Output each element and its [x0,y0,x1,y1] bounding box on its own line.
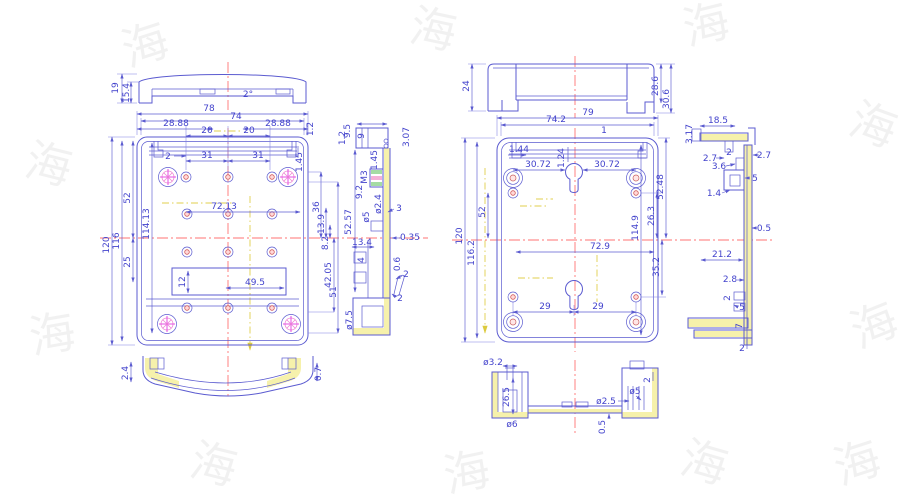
dim-label: 31 [252,151,263,161]
screw-boss [282,315,301,334]
dim-label: 13.9 [317,214,327,234]
dim-label: M3 [360,170,370,184]
dim-label: 31 [201,151,212,161]
dim-label: 30.6 [662,89,672,109]
dim-label: 20 [201,126,213,136]
dim-label: 74.2 [546,115,566,125]
watermark-glyph: 海 [675,430,734,495]
dim-label: 5 [739,303,745,313]
dim-label: 4 [357,257,367,263]
dim-label: 1.45 [370,150,380,170]
dim-label: 114.13 [142,208,152,240]
dim-label: 8.2 [321,236,331,250]
dim-label: 9.2 [355,185,365,199]
watermark-glyph: 海 [827,430,887,496]
dim-label: 49.5 [245,278,265,288]
dim-label: 26.3 [647,206,657,226]
dim-label: 1.44 [509,145,529,155]
left-main-view [137,137,308,345]
dim-label: ø3.2 [483,358,503,368]
dim-label: 0.6 [393,257,403,272]
watermark-glyph: 海 [25,304,80,365]
dim-label: 29 [539,302,551,312]
dim-label: 15.4 [122,83,132,103]
right-main-dimensions: 79 74.2 1.44 1.24 1 30.72 30.72 120 116.… [455,108,670,342]
dim-label: 7 [735,323,745,329]
dim-label: 79 [582,108,594,118]
watermark-glyph: 海 [843,92,900,158]
dim-label: 2 [165,152,171,162]
screw-boss [159,168,178,187]
watermark-glyph: 海 [439,441,495,500]
bottom-section-detail-view: ø3.2 26.5 ø6 ø2.5 ø5 0.5 2 [483,358,658,434]
dim-label: 42.05 [324,262,334,288]
dim-label: 1.2 [306,122,316,136]
dim-label: 52 [478,206,488,217]
dim-label: 20 [243,126,255,136]
dim-label: 25 [123,256,133,267]
dim-label: 18.5 [708,116,728,126]
right-lid-profile-view: 24 28.6 30.6 [462,64,675,113]
dim-label: 2 [397,294,403,304]
dim-label: 2 [726,148,732,158]
dim-label: 116.2 [467,240,477,266]
dim-label: 2.4 [121,366,131,381]
dim-label: 28.88 [265,119,291,129]
dim-label: 24 [462,80,472,92]
dim-label: 52 [123,192,133,203]
dim-label: 52.57 [344,209,354,235]
dim-label: 52.48 [656,174,666,200]
dim-label: ø2.4 [374,194,384,214]
dim-label: 36 [312,201,322,213]
dim-label: 19 [111,82,121,94]
dim-label: 0.7 [314,367,324,381]
dim-label: 2 [403,270,409,280]
dim-label: 120 [455,227,465,244]
screw-boss [158,315,177,334]
dim-label: 30.72 [594,160,620,170]
dim-label: 116 [112,232,122,249]
left-main-dimensions: 78 74 28.88 28.88 20 20 2 31 31 1.2 1.45… [102,104,316,345]
dim-label: 3.6 [712,162,727,172]
dim-label: 28.6 [651,76,661,96]
dim-label: 1.2 [338,131,348,145]
dim-label: 2 [723,295,733,301]
dim-label: 2 [643,377,653,383]
dim-label: 1 [601,126,607,136]
keyhole-slot [566,164,583,193]
dim-label: 35.2 [652,257,662,277]
watermark-glyph: 海 [677,0,735,56]
dim-label: ø2.5 [596,397,616,407]
cad-drawing-canvas: 海 海 海 海 海 海 海 海 海 海 海 19 15.4 2° [0,0,900,500]
dim-label: 12 [178,276,188,287]
dim-label: 2.7 [757,151,771,161]
dim-label: 26.5 [502,387,512,407]
dim-label: 3.17 [685,124,695,144]
watermark-glyph: 海 [405,0,461,61]
dim-label: 0.35 [400,233,420,243]
dim-label: 1.4 [707,189,722,199]
enclosure-dimension-drawing: 海 海 海 海 海 海 海 海 海 海 海 19 15.4 2° [0,0,900,500]
dim-label: 29 [592,302,604,312]
dim-label: 1.45 [295,152,305,172]
watermark-glyph: 海 [185,433,243,497]
dim-label: 21.2 [712,250,732,260]
dim-label: 30.72 [525,160,551,170]
dim-label: ø5 [362,211,372,222]
dim-label: 72.13 [211,202,237,212]
screw-boss [504,169,523,188]
right-section-view: 3.17 18.5 2 2.7 2.7 3.6 5 1.4 0.5 21.2 2… [685,116,771,354]
dim-label: ø6 [506,420,518,430]
left-chain-dimensions: 36 13.9 8.2 42.05 51 [308,172,339,333]
dim-label: 2° [243,90,253,100]
dim-label: 5 [752,174,758,184]
dim-label: ø7.5 [345,310,355,330]
dim-label: 13.4 [352,238,372,248]
dim-label: 51 [329,286,339,297]
dim-label: 2 [739,344,745,354]
left-section-view: 9.5 9 3.07 1.2 1.45 M3 9.2 ø2.4 ø5 3 52.… [338,124,420,335]
dim-label: 78 [203,104,215,114]
dim-label: 3 [396,204,402,214]
dim-label: 1.24 [557,148,567,168]
watermark-glyph: 海 [20,133,78,197]
dim-label: 114.9 [631,215,641,241]
dim-label: 9 [357,133,367,139]
dim-label: 0.5 [598,420,608,434]
dim-label: 3.07 [402,127,412,147]
dim-label: ø5 [629,387,640,397]
screw-boss [627,169,646,188]
dim-label: 0.5 [757,224,771,234]
left-lid-profile-view: 19 15.4 2° [111,74,306,103]
dim-label: 120 [102,236,112,253]
watermark-glyph: 海 [115,12,175,78]
left-bottom-profile-view: 2.4 0.7 [121,356,324,396]
dim-label: 2.8 [723,275,738,285]
dim-label: 74 [230,112,242,122]
watermark-glyph: 海 [843,292,900,359]
dim-label: 72.9 [590,242,610,252]
dim-label: 28.88 [163,119,189,129]
